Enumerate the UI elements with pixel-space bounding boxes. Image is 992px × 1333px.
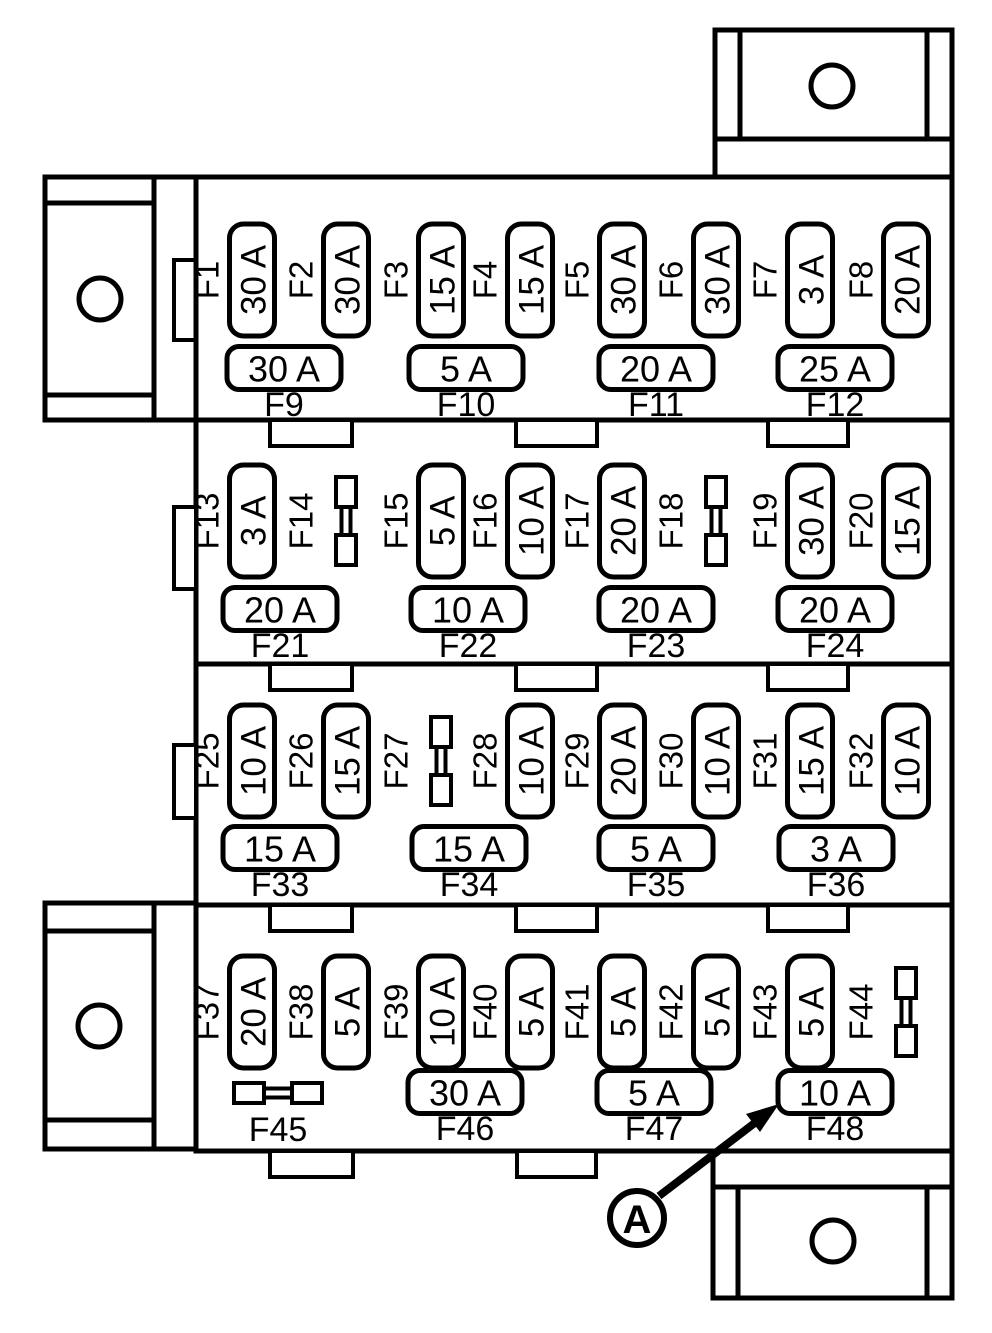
fuse-position-label: F5 <box>559 261 596 300</box>
fuse-link-icon <box>234 1083 322 1103</box>
fuse-F25: F2510 A <box>189 705 275 817</box>
fuse-position-label: F24 <box>806 627 865 665</box>
fuse-position-label: F34 <box>440 866 499 904</box>
fuse-F1: F130 A <box>189 224 275 336</box>
fuse-F32: F3210 A <box>843 705 929 817</box>
fuse-position-label: F40 <box>467 984 504 1041</box>
fuse-F28: F2810 A <box>467 705 553 817</box>
fuse-F37: F3720 A <box>189 956 275 1068</box>
fuse-amp-rating: 15 A <box>793 725 832 796</box>
fuse-amp-rating: 10 A <box>889 725 928 796</box>
fuse-position-label: F12 <box>806 386 865 424</box>
fuse-F34: 15 AF34 <box>412 827 526 905</box>
fuse-F9: 30 AF9 <box>227 347 341 425</box>
mounting-hole-icon <box>78 1005 120 1047</box>
fuse-position-label: F17 <box>559 493 596 550</box>
fuse-F11: 20 AF11 <box>599 347 713 425</box>
fuse-F43: F435 A <box>747 956 833 1068</box>
fuse-F41: F415 A <box>559 956 645 1068</box>
fuse-F2: F230 A <box>283 224 369 336</box>
fuse-position-label: F33 <box>251 866 310 904</box>
fuse-F24: 20 AF24 <box>778 588 892 666</box>
callout-label: A <box>623 1198 652 1242</box>
fuse-amp-rating: 20 A <box>605 485 644 556</box>
fuse-box-diagram: F130 AF230 AF315 AF415 AF530 AF630 AF73 … <box>0 0 992 1333</box>
fuse-position-label: F47 <box>625 1110 684 1148</box>
fuse-F42: F425 A <box>653 956 739 1068</box>
fuse-F33: 15 AF33 <box>223 827 337 905</box>
fuse-amp-rating: 20 A <box>889 244 928 315</box>
fuse-position-label: F20 <box>843 493 880 550</box>
fuse-F17: F1720 A <box>559 465 645 577</box>
fuse-position-label: F37 <box>189 984 226 1041</box>
fuse-amp-rating: 20 A <box>605 725 644 796</box>
fuse-amp-rating: 20 A <box>235 976 274 1047</box>
fuse-amp-rating: 10 A <box>699 725 738 796</box>
fuse-F44: F44 <box>843 968 917 1056</box>
fuse-position-label: F14 <box>283 493 320 550</box>
fuse-position-label: F16 <box>467 493 504 550</box>
fuse-position-label: F44 <box>843 984 880 1041</box>
fuse-amp-rating: 20 A <box>244 590 316 631</box>
mounting-hole-icon <box>812 1220 854 1262</box>
fuse-position-label: F45 <box>249 1111 308 1149</box>
fuse-position-label: F8 <box>843 261 880 300</box>
fuse-position-label: F41 <box>559 984 596 1041</box>
fuse-amp-rating: 30 A <box>248 349 320 390</box>
fuse-amp-rating: 5 A <box>440 349 492 390</box>
fuse-position-label: F48 <box>806 1110 865 1148</box>
fuse-amp-rating: 15 A <box>513 244 552 315</box>
fuse-amp-rating: 5 A <box>793 986 832 1037</box>
fuse-position-label: F36 <box>807 866 866 904</box>
fuse-position-label: F3 <box>378 261 415 300</box>
fuse-position-label: F25 <box>189 733 226 790</box>
fuse-amp-rating: 5 A <box>329 986 368 1037</box>
fuse-amp-rating: 3 A <box>235 495 274 546</box>
fuse-position-label: F38 <box>283 984 320 1041</box>
fuse-F38: F385 A <box>283 956 369 1068</box>
fuse-position-label: F29 <box>559 733 596 790</box>
fuse-F36: 3 AF36 <box>779 827 893 905</box>
mounting-bracket-top-right <box>715 30 952 177</box>
fuse-amp-rating: 15 A <box>244 829 316 870</box>
fuse-F14: F14 <box>283 477 357 565</box>
fuse-F45: F45 <box>234 1083 322 1149</box>
fuse-position-label: F28 <box>467 733 504 790</box>
mounting-hole-icon <box>811 65 853 107</box>
fuse-amp-rating: 5 A <box>630 829 682 870</box>
fuse-position-label: F23 <box>627 627 686 665</box>
fuse-amp-rating: 20 A <box>799 590 871 631</box>
fuse-amp-rating: 5 A <box>513 986 552 1037</box>
fuse-F10: 5 AF10 <box>409 347 523 425</box>
fuse-amp-rating: 30 A <box>699 244 738 315</box>
mounting-bracket-left-lower <box>45 903 196 1149</box>
mounting-hole-icon <box>79 278 121 320</box>
fuse-amp-rating: 10 A <box>799 1073 871 1114</box>
fuse-F18: F18 <box>653 477 727 565</box>
fuse-F26: F2615 A <box>283 705 369 817</box>
fuse-amp-rating: 25 A <box>799 349 871 390</box>
fuse-position-label: F30 <box>653 733 690 790</box>
fuse-position-label: F2 <box>283 261 320 300</box>
fuse-amp-rating: 10 A <box>432 590 504 631</box>
fuse-position-label: F31 <box>747 733 784 790</box>
fuse-amp-rating: 15 A <box>424 244 463 315</box>
fuse-F23: 20 AF23 <box>599 588 713 666</box>
fuse-position-label: F9 <box>264 386 304 424</box>
fuse-amp-rating: 10 A <box>513 725 552 796</box>
fuse-F5: F530 A <box>559 224 645 336</box>
fuse-position-label: F22 <box>439 627 498 665</box>
fuse-position-label: F27 <box>378 733 415 790</box>
fuse-amp-rating: 5 A <box>424 495 463 546</box>
fuse-F21: 20 AF21 <box>223 588 337 666</box>
fuse-position-label: F6 <box>653 261 690 300</box>
fuse-amp-rating: 20 A <box>620 349 692 390</box>
fuse-amp-rating: 15 A <box>329 725 368 796</box>
fuse-F4: F415 A <box>467 224 553 336</box>
fuse-position-label: F42 <box>653 984 690 1041</box>
fuse-F19: F1930 A <box>747 465 833 577</box>
fuse-amp-rating: 3 A <box>810 829 862 870</box>
fuse-position-label: F11 <box>628 386 684 424</box>
fuse-link-icon <box>336 477 356 565</box>
fuse-position-label: F46 <box>436 1110 495 1148</box>
fuse-amp-rating: 5 A <box>699 986 738 1037</box>
fuse-F31: F3115 A <box>747 705 833 817</box>
fuse-F39: F3910 A <box>378 956 464 1068</box>
fuse-link-icon <box>896 968 916 1056</box>
fuse-position-label: F39 <box>378 984 415 1041</box>
fuse-position-label: F19 <box>747 493 784 550</box>
fuse-F29: F2920 A <box>559 705 645 817</box>
fuse-position-label: F15 <box>378 493 415 550</box>
fuse-link-icon <box>706 477 726 565</box>
fuse-amp-rating: 3 A <box>793 254 832 305</box>
fuse-F46: 30 AF46 <box>408 1071 522 1149</box>
fuse-F13: F133 A <box>189 465 275 577</box>
fuse-position-label: F35 <box>627 866 686 904</box>
fuse-position-label: F1 <box>189 261 226 300</box>
fuse-position-label: F13 <box>189 493 226 550</box>
fuse-amp-rating: 30 A <box>429 1073 501 1114</box>
fuse-position-label: F43 <box>747 984 784 1041</box>
fuse-position-label: F7 <box>747 261 784 300</box>
fuse-F40: F405 A <box>467 956 553 1068</box>
fuse-position-label: F4 <box>467 261 504 300</box>
fuse-F47: 5 AF47 <box>597 1071 711 1149</box>
fuse-link-icon <box>431 717 451 805</box>
fuse-amp-rating: 15 A <box>433 829 505 870</box>
fuse-amp-rating: 20 A <box>620 590 692 631</box>
fuse-amp-rating: 30 A <box>793 485 832 556</box>
fuse-F35: 5 AF35 <box>599 827 713 905</box>
fuse-F48: 10 AF48 <box>778 1071 892 1149</box>
fuse-F27: F27 <box>378 717 452 805</box>
fuse-F12: 25 AF12 <box>778 347 892 425</box>
fuse-position-label: F26 <box>283 733 320 790</box>
fuse-F15: F155 A <box>378 465 464 577</box>
fuse-amp-rating: 10 A <box>235 725 274 796</box>
fuse-amp-rating: 10 A <box>424 976 463 1047</box>
fuse-amp-rating: 30 A <box>605 244 644 315</box>
mounting-bracket-bottom-right <box>713 1151 952 1298</box>
fuse-F30: F3010 A <box>653 705 739 817</box>
fuse-amp-rating: 30 A <box>235 244 274 315</box>
fuse-F6: F630 A <box>653 224 739 336</box>
fuse-position-label: F18 <box>653 493 690 550</box>
fuse-F7: F73 A <box>747 224 833 336</box>
fuse-amp-rating: 5 A <box>628 1073 680 1114</box>
fuse-F3: F315 A <box>378 224 464 336</box>
fuse-amp-rating: 5 A <box>605 986 644 1037</box>
fuse-position-label: F21 <box>251 627 310 665</box>
fuse-amp-rating: 30 A <box>329 244 368 315</box>
fuse-F16: F1610 A <box>467 465 553 577</box>
fuse-F22: 10 AF22 <box>411 588 525 666</box>
fuse-position-label: F10 <box>437 386 496 424</box>
fuse-F20: F2015 A <box>843 465 929 577</box>
fuse-amp-rating: 10 A <box>513 485 552 556</box>
fuse-amp-rating: 15 A <box>889 485 928 556</box>
fuse-F8: F820 A <box>843 224 929 336</box>
fuse-position-label: F32 <box>843 733 880 790</box>
